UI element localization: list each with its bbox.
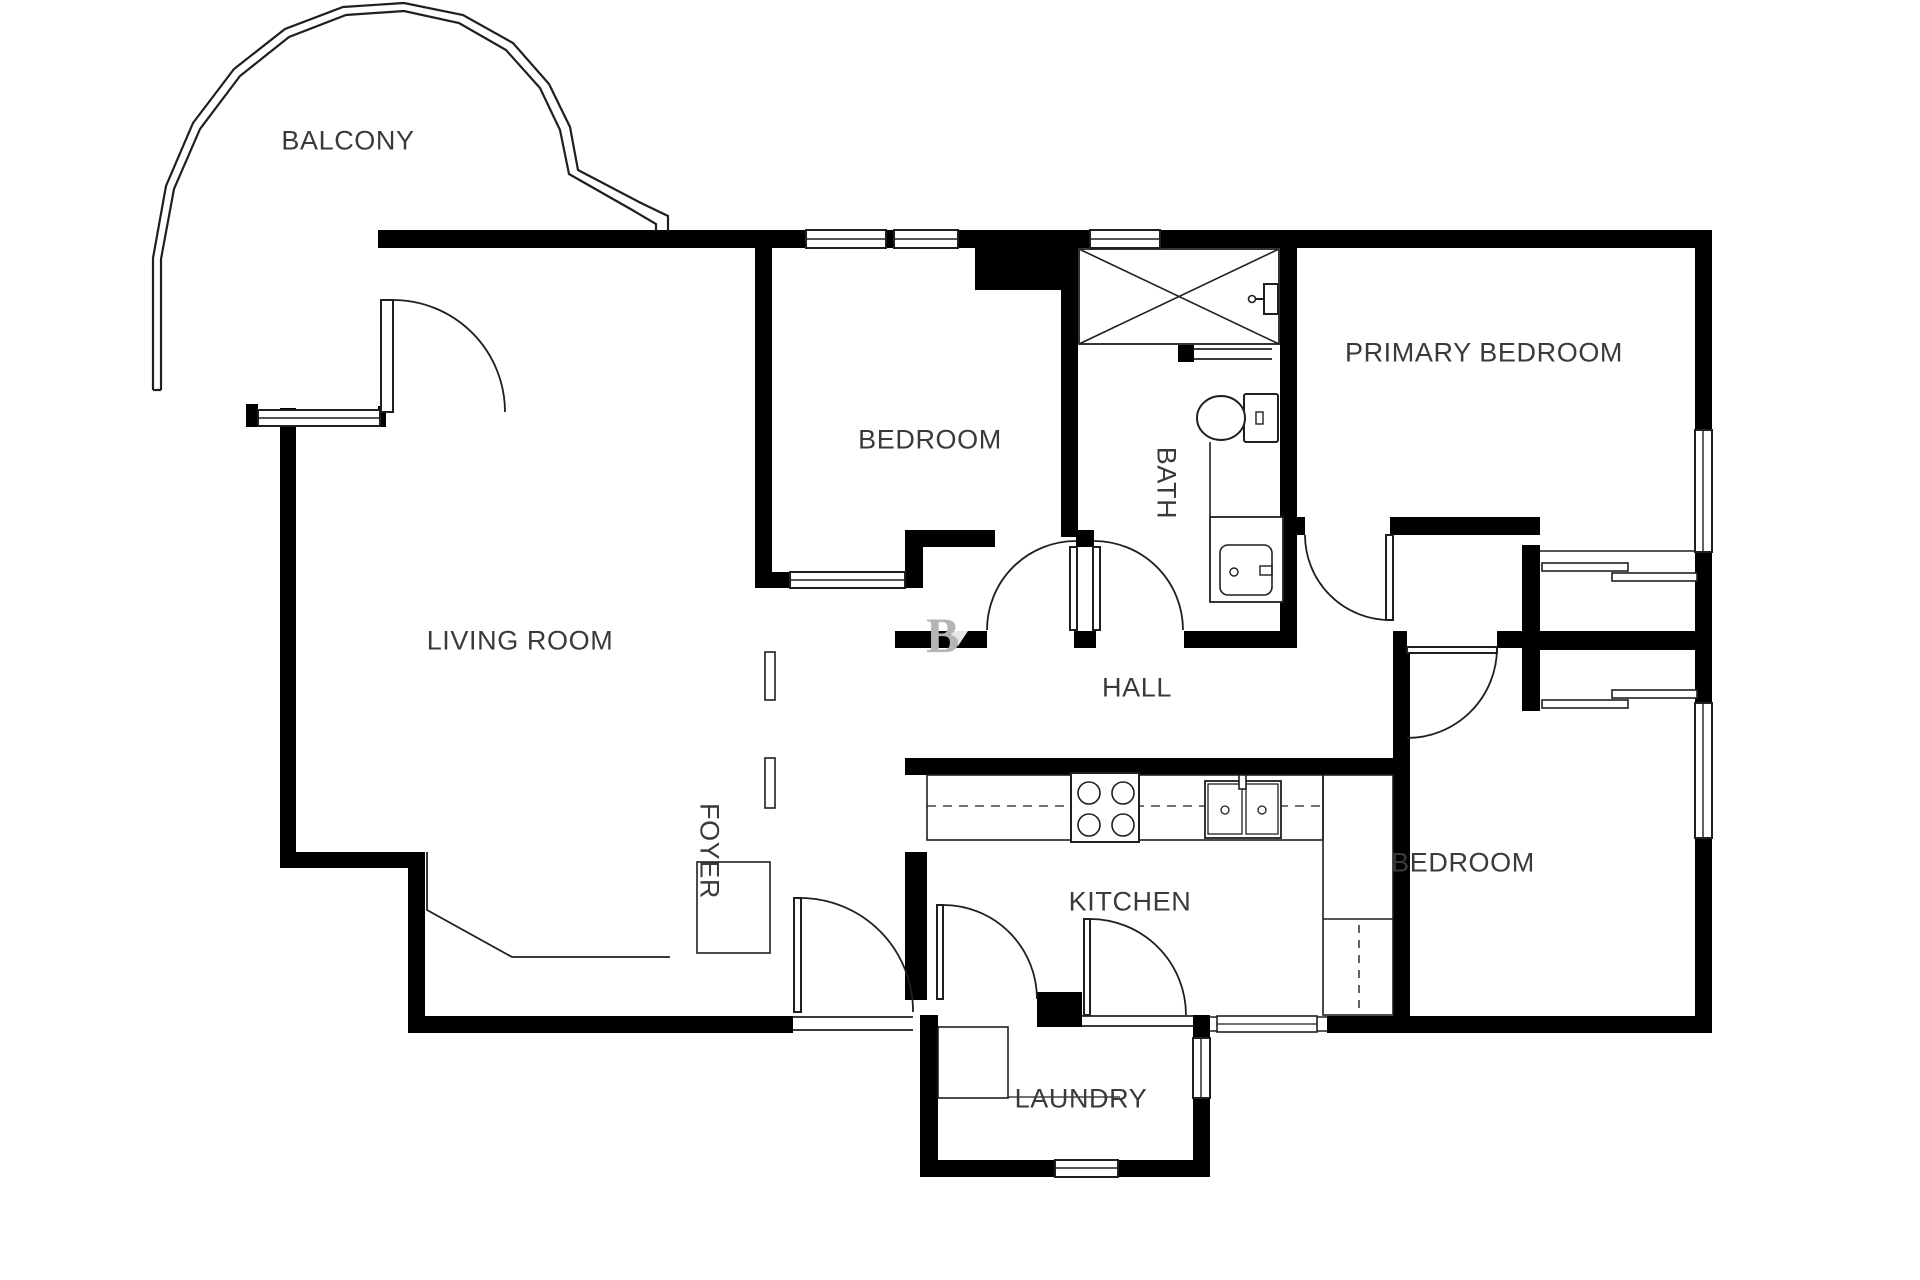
laundry-door: [1084, 919, 1186, 1015]
foyer-entry-door: [794, 898, 913, 1012]
primary-bedroom-door: [1305, 535, 1393, 620]
window-bedroom-interior: [790, 572, 905, 588]
shower-glass: [1194, 349, 1272, 359]
bath-sink-icon: [1210, 442, 1283, 602]
bath-door: [1093, 541, 1183, 630]
living-room-nook: [427, 852, 670, 957]
balcony-door: [381, 300, 505, 412]
window-bedroom-top-2: [894, 230, 958, 248]
window-laundry-right: [1193, 1038, 1210, 1098]
shower-icon: [1079, 249, 1279, 344]
washer-icon: [938, 1027, 1120, 1098]
kitchen-counter: [927, 775, 1393, 1015]
bedroom-top-door: [987, 541, 1077, 630]
window-balcony: [258, 410, 380, 426]
foyer-cabinet: [697, 862, 770, 953]
entry-threshold: [793, 1017, 913, 1030]
bedroom-bottom-door: [1407, 647, 1497, 738]
window-kitchen-alcove: [1210, 1016, 1327, 1032]
window-laundry-bottom: [1055, 1160, 1118, 1177]
closet-sliding-doors: [1540, 551, 1697, 708]
laundry-north-thin-wall: [1082, 1016, 1193, 1026]
walls: [246, 230, 1712, 1177]
kitchen-door: [937, 905, 1037, 999]
kitchen-sink-icon: [1205, 775, 1281, 838]
window-bath: [1090, 230, 1160, 248]
stove-icon: [1071, 773, 1139, 842]
foyer-thin-wall: [765, 652, 775, 808]
window-primary-bedroom: [1695, 430, 1712, 552]
floorplan-drawing: B: [0, 0, 1920, 1280]
watermark-logo: B: [926, 607, 968, 663]
floorplan-canvas: B BALCONYLIVING ROOMBEDROOMBATHPRIMARY B…: [0, 0, 1920, 1280]
windows: [258, 230, 1712, 1177]
toilet-icon: [1197, 394, 1278, 442]
window-bedroom-bottom: [1695, 703, 1712, 838]
svg-text:B: B: [926, 607, 959, 663]
window-bedroom-top-1: [806, 230, 886, 248]
balcony-outline: [153, 3, 668, 390]
